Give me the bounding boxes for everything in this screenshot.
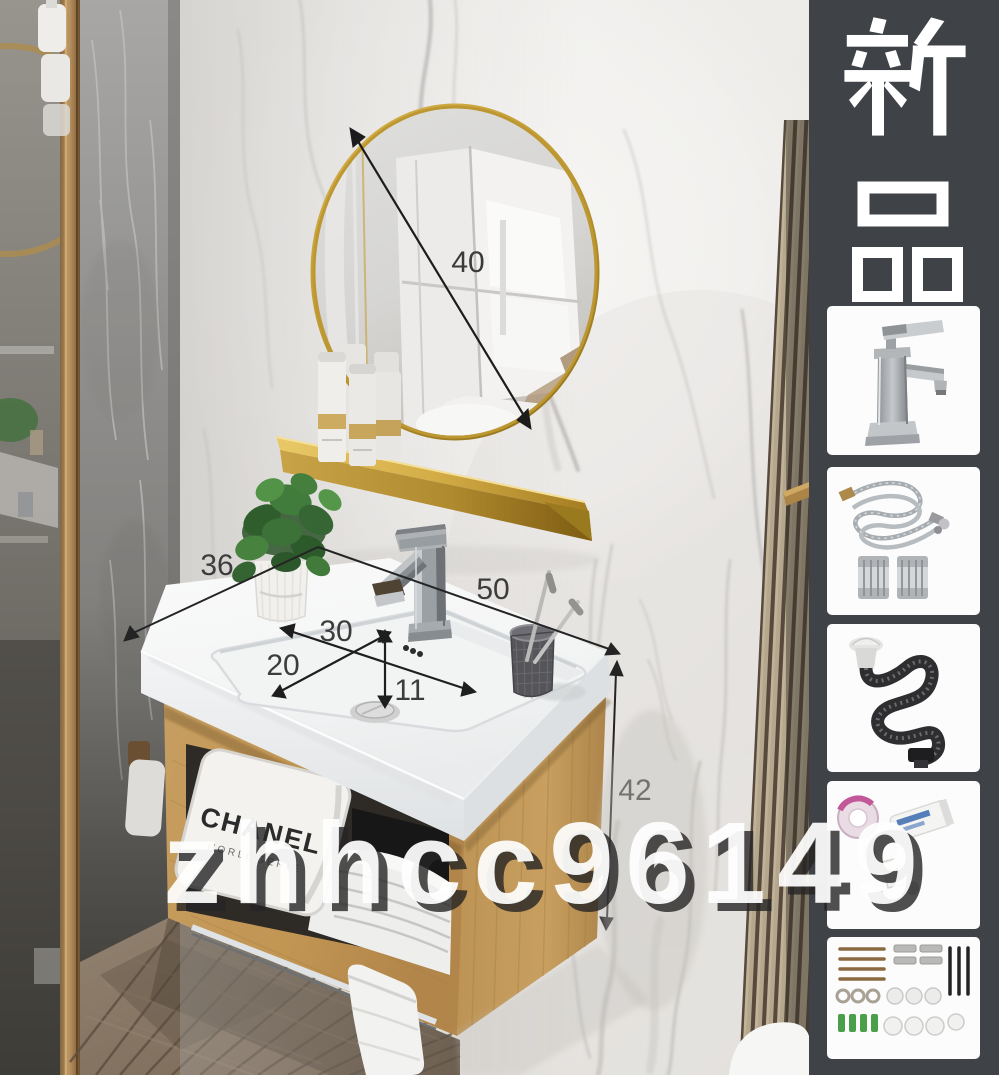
svg-text:30: 30 — [319, 615, 352, 648]
svg-text:40: 40 — [451, 246, 484, 279]
svg-text:50: 50 — [476, 573, 509, 606]
svg-text:36: 36 — [200, 549, 233, 582]
svg-text:11: 11 — [394, 674, 425, 707]
svg-text:zhhcc96149: zhhcc96149 — [163, 798, 929, 928]
svg-text:20: 20 — [266, 649, 299, 682]
